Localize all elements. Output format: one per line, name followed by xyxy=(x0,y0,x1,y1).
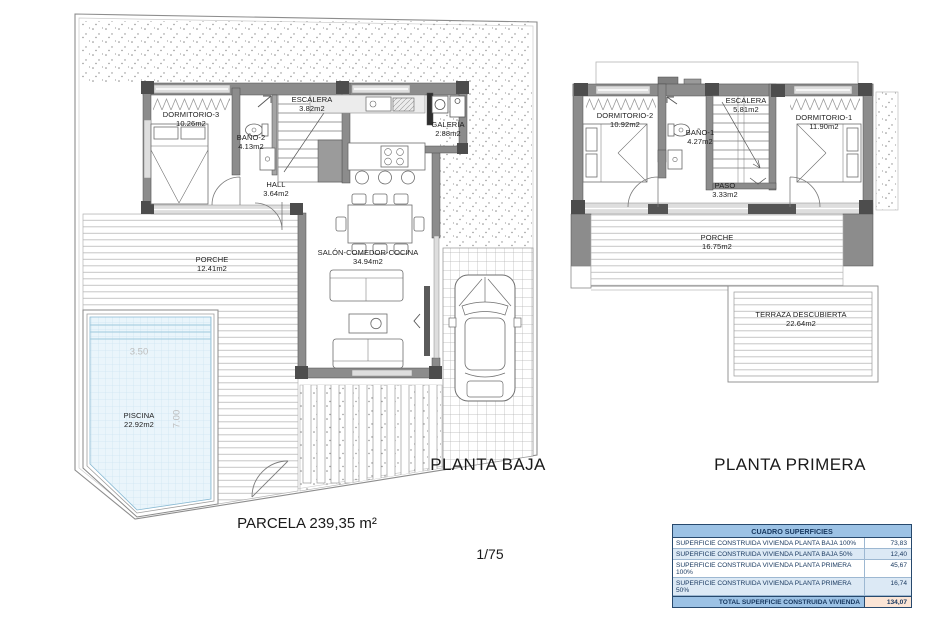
closet-dorm1 xyxy=(790,96,860,111)
parcel-label: PARCELA 239,35 m² xyxy=(237,515,377,532)
room-label-dormitorio1: DORMITORIO-1 11.90m2 xyxy=(796,114,852,131)
room-label-porche-pp: PORCHE 16.75m2 xyxy=(701,234,734,251)
room-label-bano2: BAÑO-2 4.13m2 xyxy=(237,134,266,151)
room-label-dormitorio3: DORMITORIO-3 10.26m2 xyxy=(163,111,219,128)
pergola-slats xyxy=(300,383,442,491)
roof-eave-line xyxy=(596,62,858,84)
room-label-porche-pb: PORCHE 12.41m2 xyxy=(196,256,229,273)
table-row: SUPERFICIE CONSTRUIDA VIVIENDA PLANTA PR… xyxy=(673,578,911,596)
room-label-paso: PASO 3.33m2 xyxy=(712,182,738,199)
row-value: 73,83 xyxy=(865,538,911,548)
planta-baja-plan xyxy=(75,14,537,519)
planta-baja-title: PLANTA BAJA xyxy=(430,455,546,475)
closet-dorm3 xyxy=(153,96,230,111)
surface-table: CUADRO SUPERFICIES SUPERFICIE CONSTRUIDA… xyxy=(672,524,912,608)
car xyxy=(449,275,521,401)
bed-dorm2 xyxy=(583,124,647,182)
surface-table-title: CUADRO SUPERFICIES xyxy=(673,525,911,538)
pool-length-dim: 7.00 xyxy=(172,410,183,429)
row-label: SUPERFICIE CONSTRUIDA VIVIENDA PLANTA BA… xyxy=(673,538,865,548)
row-label: SUPERFICIE CONSTRUIDA VIVIENDA PLANTA PR… xyxy=(673,560,865,577)
bed-dorm1 xyxy=(797,124,861,182)
planta-primera-title: PLANTA PRIMERA xyxy=(714,455,866,475)
room-label-terraza: TERRAZA DESCUBIERTA 22.64m2 xyxy=(755,311,846,328)
total-value: 134,07 xyxy=(865,597,911,607)
total-label: TOTAL SUPERFICIE CONSTRUIDA VIVIENDA xyxy=(673,597,865,607)
row-label: SUPERFICIE CONSTRUIDA VIVIENDA PLANTA BA… xyxy=(673,549,865,559)
gravel-texture-top xyxy=(81,21,531,83)
table-row: SUPERFICIE CONSTRUIDA VIVIENDA PLANTA BA… xyxy=(673,549,911,560)
scale-label: 1/75 xyxy=(476,546,503,562)
room-label-escalera-pp: ESCALERA 5.81m2 xyxy=(726,97,767,114)
table-row: SUPERFICIE CONSTRUIDA VIVIENDA PLANTA PR… xyxy=(673,560,911,578)
gravel-strip xyxy=(876,92,898,210)
pool-width-dim: 3.50 xyxy=(130,347,149,358)
floorplan-sheet: DORMITORIO-3 10.26m2 BAÑO-2 4.13m2 ESCAL… xyxy=(0,0,945,625)
table-row: SUPERFICIE CONSTRUIDA VIVIENDA PLANTA BA… xyxy=(673,538,911,549)
bed-dorm3 xyxy=(151,124,208,204)
room-label-galeria: GALERÍA 2.88m2 xyxy=(431,121,464,138)
room-label-hall: HALL 3.64m2 xyxy=(263,181,289,198)
room-label-escalera-pb: ESCALERA 3.82m2 xyxy=(292,96,333,113)
room-label-salon: SALÓN-COMEDOR-COCINA 34.94m2 xyxy=(318,249,419,266)
room-label-bano1: BAÑO-1 4.27m2 xyxy=(686,129,715,146)
vent-arrow xyxy=(667,97,677,104)
table-total-row: TOTAL SUPERFICIE CONSTRUIDA VIVIENDA 134… xyxy=(673,596,911,607)
stove xyxy=(381,146,408,167)
row-label: SUPERFICIE CONSTRUIDA VIVIENDA PLANTA PR… xyxy=(673,578,865,595)
kitchen-island xyxy=(348,143,425,184)
room-label-dormitorio2: DORMITORIO-2 10.92m2 xyxy=(597,112,653,129)
row-value: 12,40 xyxy=(865,549,911,559)
closet-dorm2 xyxy=(586,96,656,111)
row-value: 45,67 xyxy=(865,560,911,577)
open-terrace xyxy=(728,286,878,382)
room-label-piscina: PISCINA 22.92m2 xyxy=(124,412,155,429)
row-value: 16,74 xyxy=(865,578,911,595)
first-floor-porch xyxy=(571,214,873,290)
